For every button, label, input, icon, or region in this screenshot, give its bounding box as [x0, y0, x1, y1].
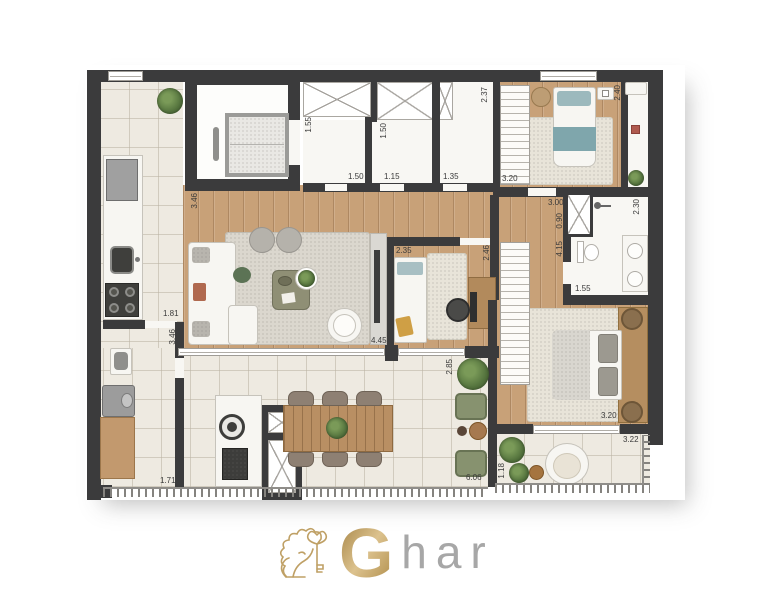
- terrace-sliding-doors: [178, 348, 385, 356]
- wall-bath1-left: [365, 117, 372, 192]
- kitchen-window: [108, 71, 143, 81]
- dim-living-346: 3.46: [169, 329, 177, 345]
- wall-bedroom2-right: [621, 80, 628, 187]
- wall-laundry-right: [175, 322, 184, 487]
- laundry-basin: [114, 352, 128, 370]
- dim-hall2-300: 3.00: [548, 199, 564, 207]
- fridge: [106, 159, 138, 201]
- terrace-small-pot: [457, 426, 467, 436]
- wall-office-top: [385, 237, 460, 246]
- dim-mbalc-322: 3.22: [623, 436, 639, 444]
- dim-bath2-135: 1.35: [443, 173, 459, 181]
- office-monitor: [470, 292, 477, 322]
- dim-closet-150: 1.50: [348, 173, 364, 181]
- living-plant: [298, 270, 315, 287]
- wall-terrace-column: [385, 345, 398, 361]
- master-blanket: [552, 330, 590, 400]
- balcony-plant-1: [499, 437, 525, 463]
- coffee-table-book: [281, 292, 295, 304]
- dim-kitchen-181: 1.81: [163, 310, 179, 318]
- wall-terrace-master-div: [488, 300, 497, 487]
- svg-text:G: G: [339, 517, 393, 587]
- laundry-door: [175, 358, 184, 378]
- office-chair: [446, 298, 470, 322]
- dim-bed2-240: 2.40: [614, 85, 622, 101]
- master-wardrobe: [500, 242, 530, 385]
- master-window: [533, 425, 620, 434]
- bedroom2-door: [528, 188, 556, 196]
- bedroom2-frame: [602, 90, 609, 97]
- burner-3: [109, 303, 119, 313]
- wall-mbath-bottom: [563, 295, 663, 305]
- dim-closet-155: 1.55: [305, 117, 313, 133]
- kitchen-faucet: [135, 257, 140, 262]
- dim-mbalc-118: 1.18: [498, 463, 506, 479]
- mbath-shower: [565, 192, 593, 237]
- bath1-door: [380, 184, 404, 191]
- master-nightstand-2: [621, 401, 643, 423]
- mbath-toilet-bowl: [584, 244, 599, 261]
- dim-hall2-090: 0.90: [556, 213, 564, 229]
- bedroom2-wardrobe: [500, 85, 530, 185]
- bbq-cooktop-center: [227, 422, 237, 432]
- pouf-2: [276, 227, 302, 253]
- bedroom2-pillow: [557, 91, 591, 106]
- elevator-car: [225, 113, 289, 177]
- dining-chair-5: [322, 452, 348, 467]
- master-pillow-1: [598, 334, 618, 363]
- dim-office-235: 2.35: [396, 247, 412, 255]
- dining-chair-6: [356, 452, 382, 467]
- brand-suffix: har: [401, 529, 494, 575]
- dim-laundry-171: 1.71: [160, 477, 176, 485]
- dim-mbath-415: 4.15: [556, 241, 564, 257]
- terrace-plant: [457, 358, 489, 390]
- sofa-pillow-2: [192, 321, 210, 337]
- entry-closet: [303, 82, 371, 117]
- wall-left: [87, 70, 101, 500]
- mbath-basin-2: [627, 271, 643, 287]
- elevator-door-gap: [288, 120, 300, 165]
- dining-chair-4: [288, 452, 314, 467]
- washer-door: [121, 393, 133, 408]
- floor-plan-page: 3.46 3.46 1.81 1.71 1.55 1.50 1.50 1.15 …: [0, 0, 768, 599]
- dim-bath1-115: 1.15: [384, 173, 400, 181]
- bath2-door: [443, 184, 467, 191]
- dim-mbed-320: 3.20: [601, 412, 617, 420]
- wall-master-bottom-r: [620, 424, 650, 434]
- laundry-counter: [100, 417, 135, 479]
- dining-chair-3: [356, 391, 382, 406]
- balcony-pot: [529, 465, 544, 480]
- dining-chair-2: [322, 391, 348, 406]
- coffee-table-tray: [278, 276, 292, 286]
- master-balcony-railing-right: [642, 435, 650, 485]
- wall-bath2-right: [493, 82, 500, 192]
- wall-master-bottom-l: [495, 424, 533, 434]
- dim-mbath-155: 1.55: [575, 285, 591, 293]
- wall-right: [648, 70, 663, 445]
- terrace-side-table: [469, 422, 487, 440]
- dim-shaft-237: 2.37: [481, 87, 489, 103]
- mbath-shower-head: [594, 202, 601, 209]
- mbath-basin-1: [627, 243, 643, 259]
- dim-terrace-606: 6.06: [466, 474, 482, 482]
- master-balcony-railing: [495, 483, 650, 493]
- bedroom2-ac-ledge: [625, 82, 647, 95]
- burner-2: [125, 287, 135, 297]
- sofa-cushion-green: [233, 267, 251, 283]
- apartment-floor-plan: 3.46 3.46 1.81 1.71 1.55 1.50 1.50 1.15 …: [85, 65, 685, 500]
- living-armchair-seat: [333, 314, 356, 337]
- bbq-grill-grate: [222, 448, 248, 480]
- office-pillow: [397, 262, 423, 275]
- dim-living-445: 4.45: [371, 337, 387, 345]
- kitchen-door: [145, 321, 177, 328]
- terrace-armchair-1: [455, 393, 487, 420]
- master-nightstand-1: [621, 308, 643, 330]
- burner-4: [125, 303, 135, 313]
- sofa-pillow-1: [192, 247, 210, 263]
- bedroom2-stool: [531, 87, 551, 107]
- dining-chair-1: [288, 391, 314, 406]
- dim-bath1-150: 1.50: [380, 123, 388, 139]
- lion-key-icon: [273, 519, 335, 585]
- brand-logo: G har: [0, 512, 768, 592]
- sofa-pillow-rust: [193, 283, 206, 301]
- dim-hall-346: 3.46: [191, 193, 199, 209]
- terrace-railing: [103, 487, 488, 497]
- pouf-1: [249, 227, 275, 253]
- wall-kitchen-bottom: [103, 320, 145, 329]
- dim-mbath-230: 2.30: [633, 199, 641, 215]
- bedroom2-plant: [628, 170, 644, 186]
- bedroom2-blanket: [553, 127, 596, 151]
- dim-office-246: 2.46: [483, 245, 491, 261]
- dining-table-plant: [326, 417, 348, 439]
- burner-1: [109, 287, 119, 297]
- balcony-chair-cushion: [553, 453, 581, 479]
- hall-closet: [377, 82, 433, 120]
- balcony-plant-2: [509, 463, 529, 483]
- master-pillow-2: [598, 367, 618, 396]
- bedroom2-window: [540, 71, 597, 81]
- kitchen-plant: [157, 88, 183, 114]
- dim-closet2-320: 3.20: [502, 175, 518, 183]
- kitchen-sink: [110, 246, 134, 274]
- brand-letter-g: G: [339, 517, 397, 587]
- bedroom2-deco: [631, 125, 640, 134]
- mbath-door: [563, 262, 571, 284]
- wall-bath-div: [432, 82, 440, 192]
- mbath-toilet-tank: [577, 241, 584, 263]
- office-rug: [427, 253, 467, 340]
- dim-terrace-285: 2.85: [446, 359, 454, 375]
- elevator-car-line: [230, 144, 284, 145]
- elevator-rail: [213, 127, 219, 161]
- office-sliding-doors: [398, 348, 465, 356]
- foyer-door: [325, 184, 347, 191]
- sofa-chaise: [228, 305, 258, 345]
- tv: [374, 250, 380, 323]
